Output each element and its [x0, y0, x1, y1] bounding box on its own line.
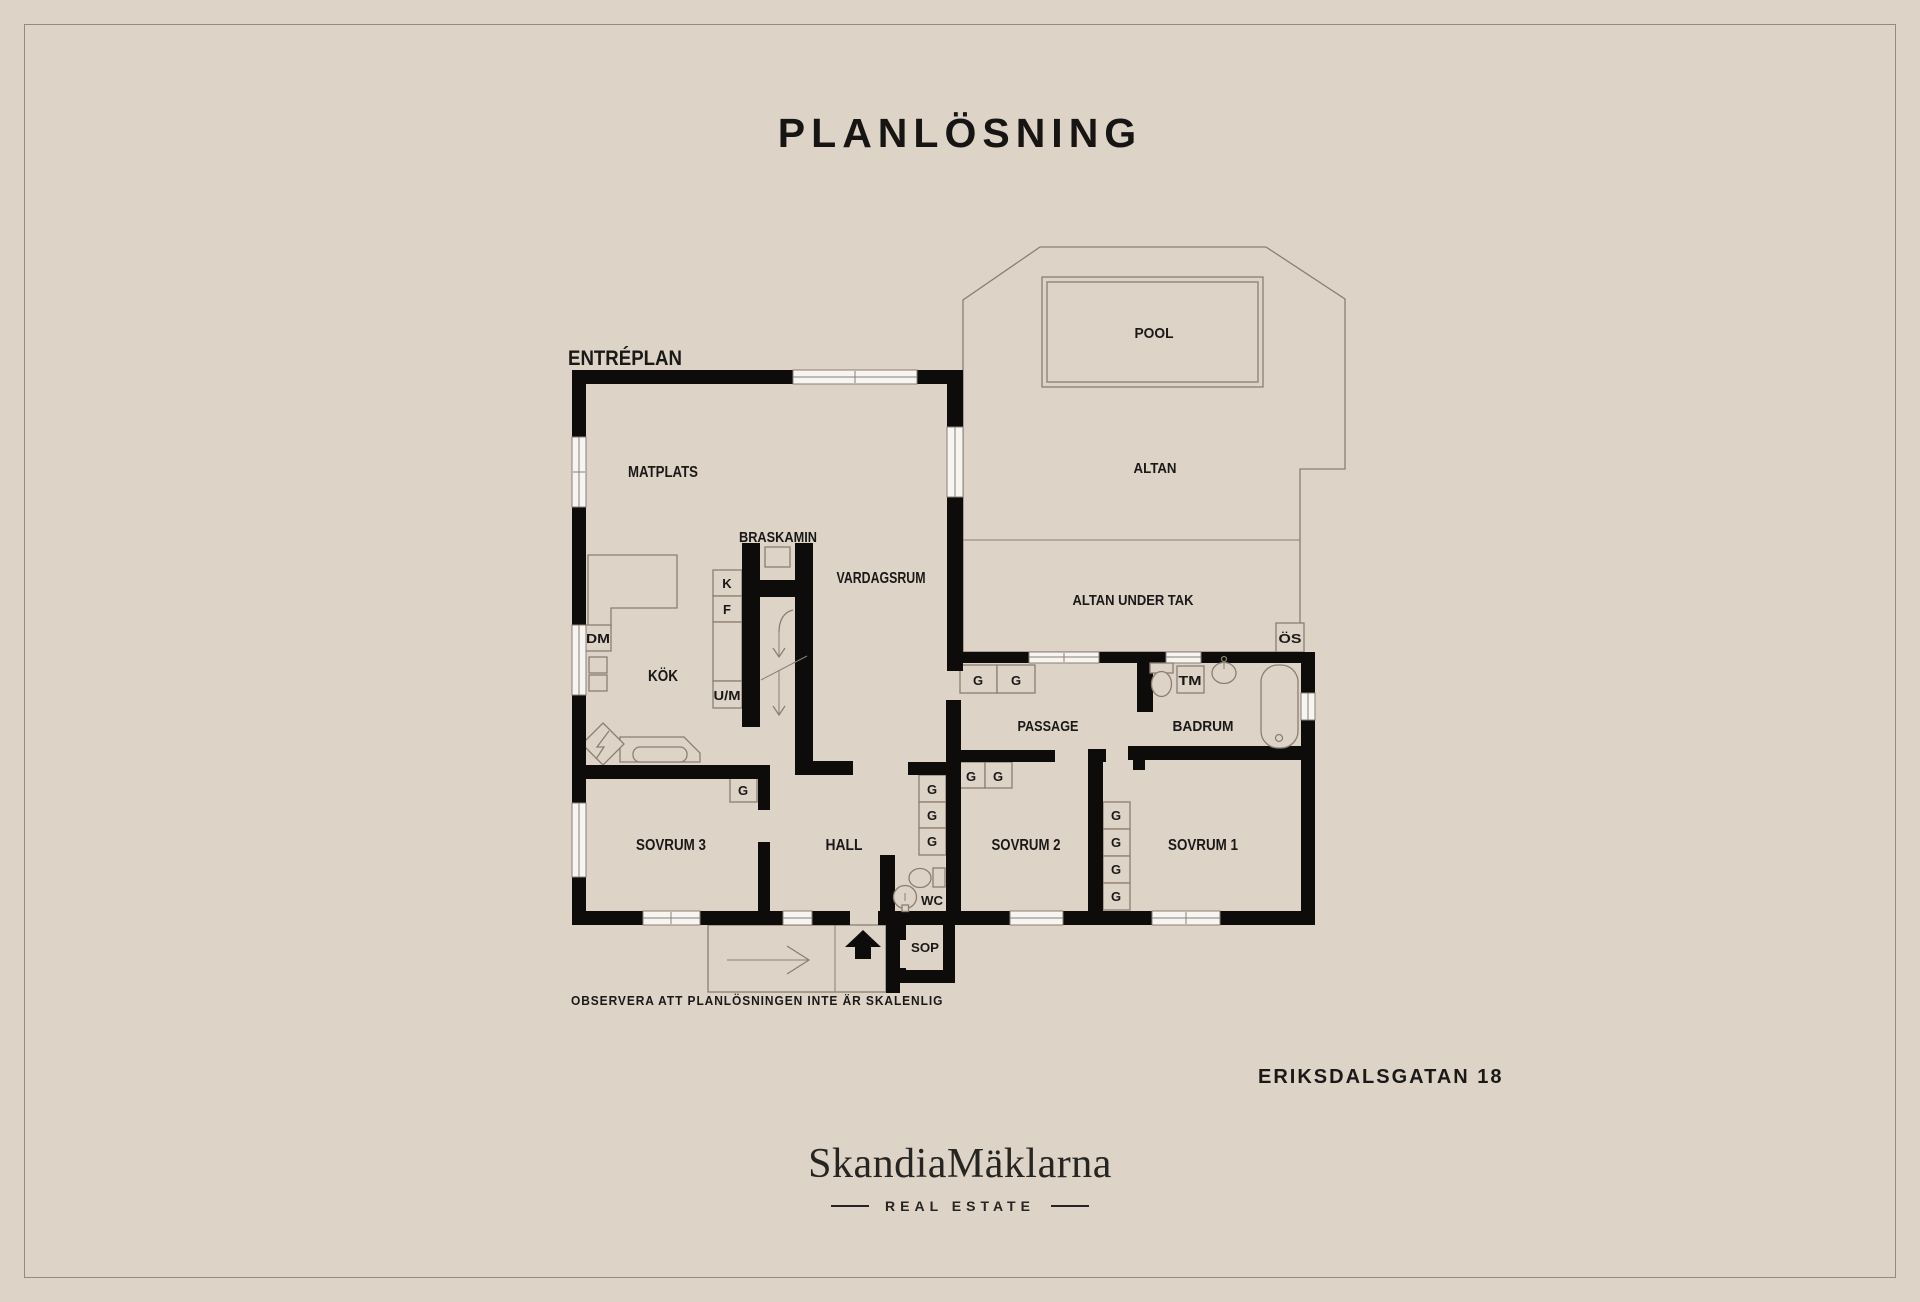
- home-entrance-icon: [845, 930, 881, 959]
- kitchen-counter: [588, 555, 677, 628]
- label-altan: ALTAN: [1134, 460, 1177, 477]
- label-dm: DM: [586, 631, 610, 646]
- label-wc: WC: [921, 893, 944, 908]
- wc-toilet-tank: [933, 868, 945, 887]
- brand-logo: SkandiaMäklarna REAL ESTATE: [0, 1140, 1920, 1214]
- floor-label: ENTRÉPLAN: [568, 347, 682, 370]
- kitchen-sink: [633, 747, 687, 762]
- brand-name: SkandiaMäklarna: [0, 1140, 1920, 1188]
- brand-tagline: REAL ESTATE: [885, 1198, 1035, 1214]
- svg-text:G: G: [927, 808, 937, 823]
- label-f: F: [723, 602, 731, 617]
- label-sop: SOP: [911, 940, 939, 955]
- label-altan-under-tak: ALTAN UNDER TAK: [1073, 592, 1194, 609]
- svg-text:G: G: [1011, 673, 1021, 688]
- svg-text:G: G: [1111, 808, 1121, 823]
- label-sovrum2: SOVRUM 2: [992, 837, 1061, 854]
- tagline-left-rule: [831, 1205, 869, 1207]
- svg-text:G: G: [973, 673, 983, 688]
- appliance-square: [589, 675, 607, 691]
- stove-diamond: [582, 723, 624, 765]
- svg-text:G: G: [966, 769, 976, 784]
- floorplan-drawing: ENTRÉPLAN MATPLATS KÖK VARDAGSRUM BRASKA…: [0, 0, 1920, 1302]
- floorplan-page: PLANLÖSNING: [0, 0, 1920, 1302]
- svg-text:G: G: [993, 769, 1003, 784]
- svg-text:G: G: [927, 782, 937, 797]
- label-sovrum3: SOVRUM 3: [636, 837, 706, 854]
- svg-text:G: G: [927, 834, 937, 849]
- svg-text:G: G: [1111, 862, 1121, 877]
- label-braskamin: BRASKAMIN: [739, 529, 817, 546]
- label-vardagsrum: VARDAGSRUM: [837, 570, 926, 587]
- label-matplats: MATPLATS: [628, 464, 698, 481]
- wc-toilet-bowl: [909, 869, 931, 888]
- appliance-square: [589, 657, 607, 673]
- scale-disclaimer: OBSERVERA ATT PLANLÖSNINGEN INTE ÄR SKAL…: [571, 993, 943, 1008]
- toilet-bowl: [1152, 672, 1172, 697]
- label-pool: POOL: [1135, 325, 1174, 342]
- label-k: K: [722, 576, 732, 591]
- room-labels: ENTRÉPLAN MATPLATS KÖK VARDAGSRUM BRASKA…: [568, 325, 1238, 955]
- svg-text:G: G: [1111, 835, 1121, 850]
- entrance-direction-arrow: [727, 946, 809, 974]
- fireplace: [765, 547, 790, 567]
- svg-text:G: G: [738, 783, 748, 798]
- label-passage: PASSAGE: [1018, 718, 1079, 735]
- cabinet-tall: [713, 622, 742, 681]
- label-hall: HALL: [826, 837, 863, 854]
- tagline-right-rule: [1051, 1205, 1089, 1207]
- kitchen-fixtures: [582, 555, 742, 765]
- label-tm: TM: [1179, 673, 1202, 688]
- label-um: U/M: [714, 688, 741, 703]
- property-address: ERIKSDALSGATAN 18: [1258, 1066, 1504, 1089]
- bathtub: [1261, 665, 1298, 748]
- label-kok: KÖK: [648, 666, 678, 685]
- svg-text:G: G: [1111, 889, 1121, 904]
- label-sovrum1: SOVRUM 1: [1168, 837, 1238, 854]
- label-os: ÖS: [1279, 631, 1302, 646]
- label-badrum: BADRUM: [1173, 718, 1234, 735]
